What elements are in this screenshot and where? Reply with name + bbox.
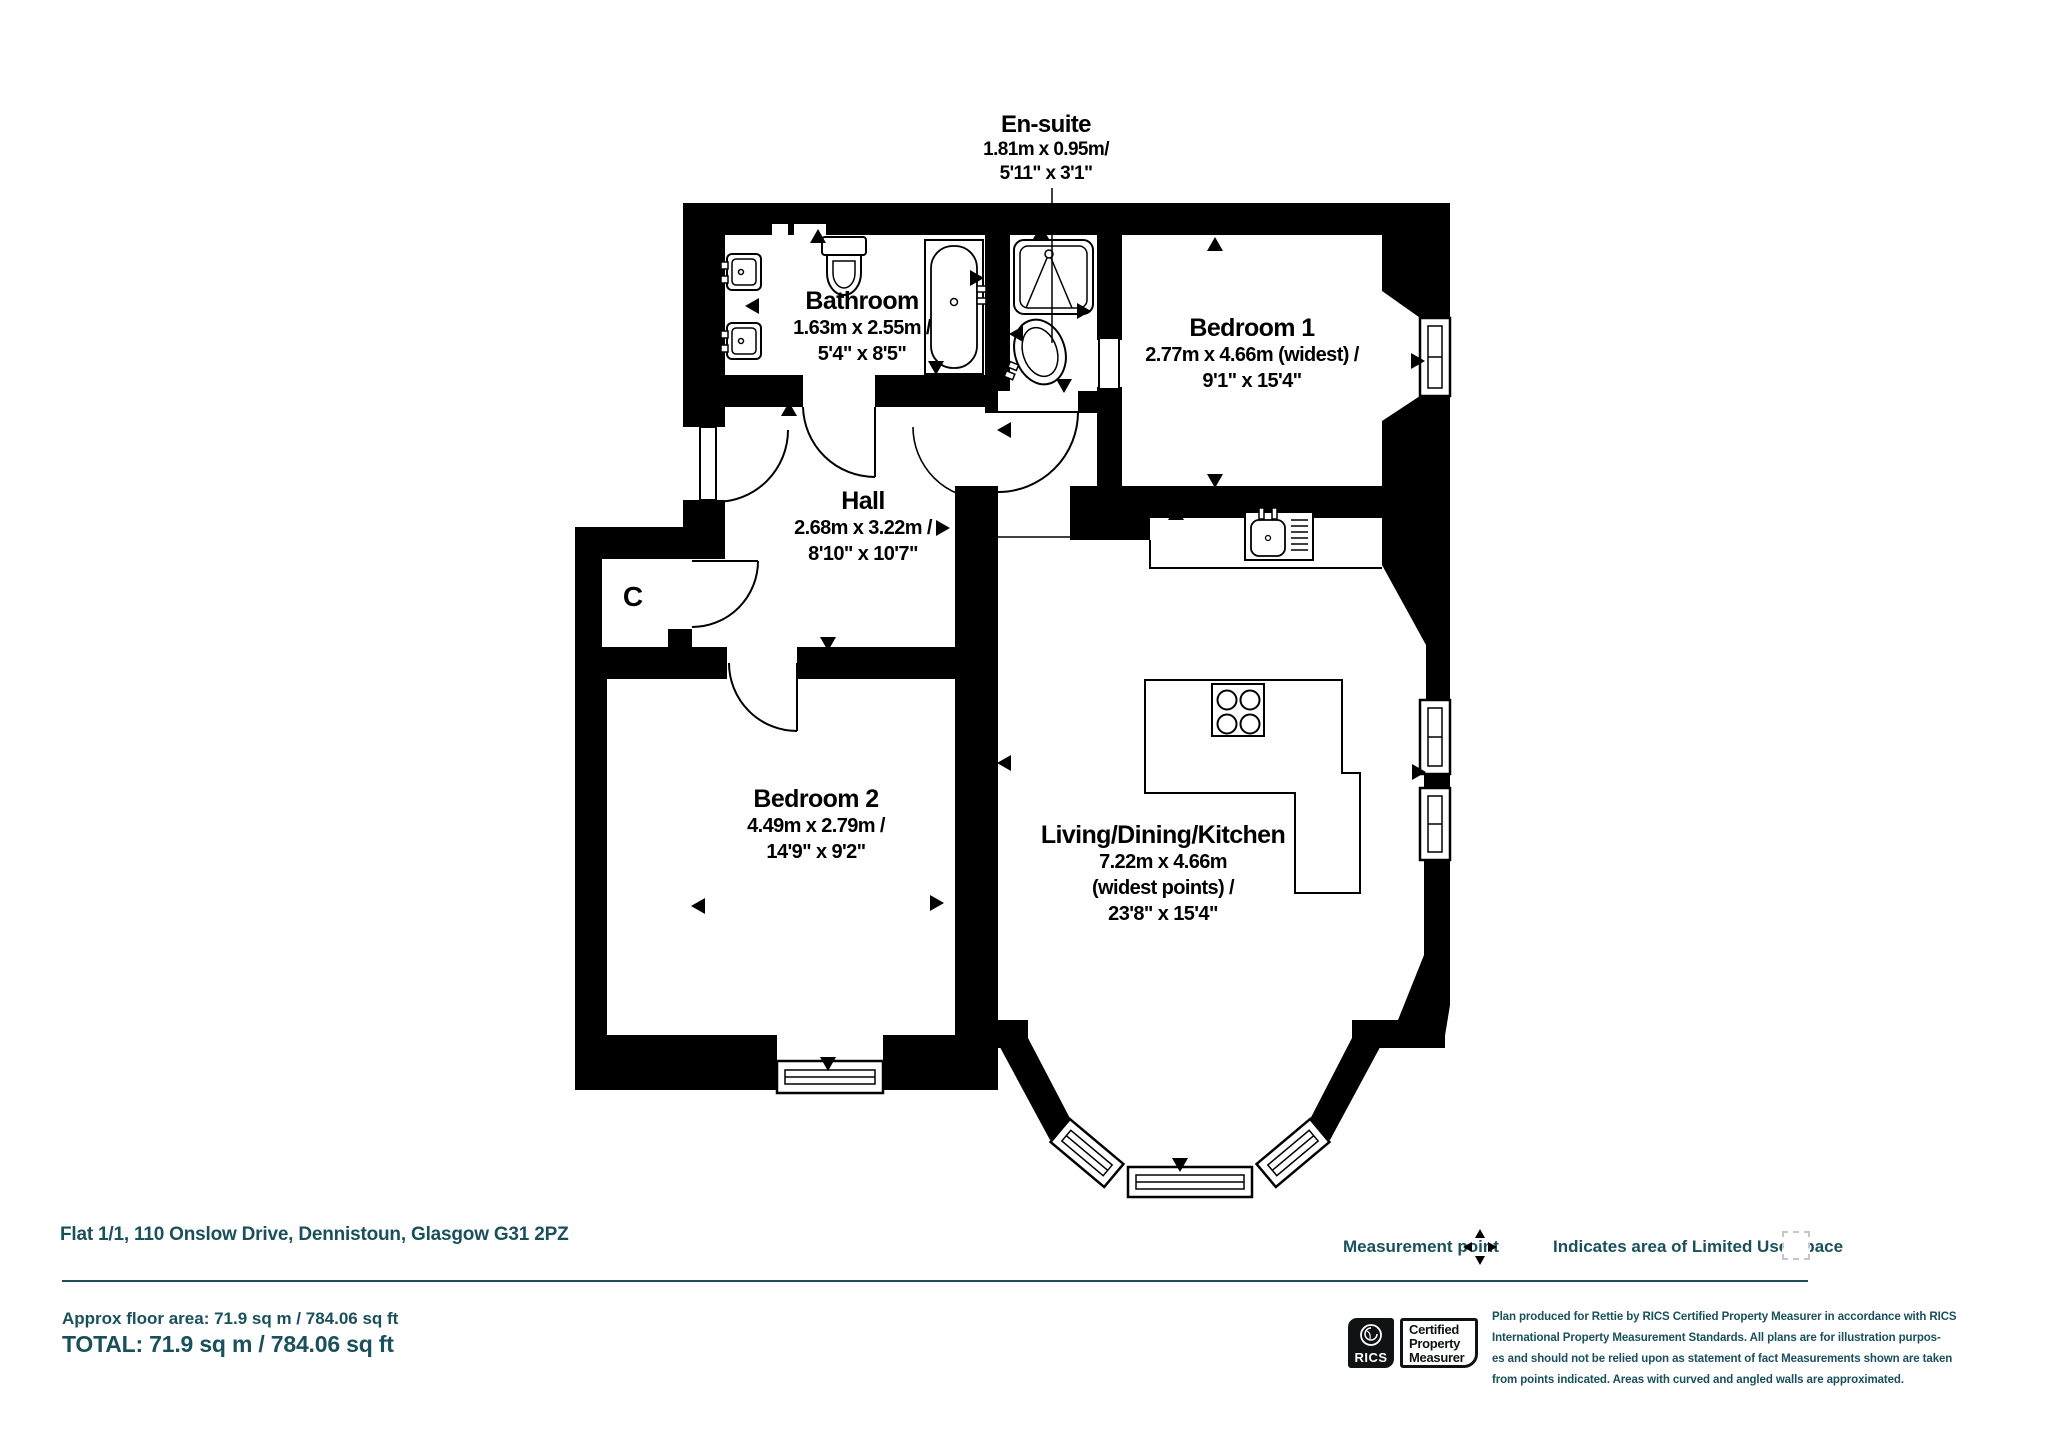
room-dims: 2.77m x 4.66m (widest) / bbox=[1145, 342, 1358, 368]
window-bay-right bbox=[1257, 1119, 1330, 1187]
room-title: Hall bbox=[794, 487, 932, 515]
room-dims: 4.49m x 2.79m / bbox=[747, 813, 885, 839]
window-bedroom1 bbox=[1420, 318, 1450, 396]
room-dims: 5'11" x 3'1" bbox=[983, 162, 1109, 186]
closet-door bbox=[692, 561, 758, 627]
footer-divider bbox=[62, 1280, 1808, 1282]
window-bay-center bbox=[1128, 1167, 1252, 1197]
window-living-right-1 bbox=[1420, 700, 1450, 774]
room-title: Bathroom bbox=[793, 287, 931, 315]
certified-property-measurer-badge: Certified Property Measurer bbox=[1400, 1318, 1478, 1368]
approx-floor-area: Approx floor area: 71.9 sq m / 784.06 sq… bbox=[62, 1309, 398, 1329]
room-title: Bedroom 2 bbox=[747, 785, 885, 813]
bedroom2-door bbox=[729, 663, 797, 731]
limited-use-space-swatch bbox=[1782, 1231, 1810, 1260]
disclaimer-line: International Property Measurement Stand… bbox=[1492, 1328, 2002, 1349]
room-dims: 7.22m x 4.66m bbox=[1041, 849, 1285, 875]
property-address: Flat 1/1, 110 Onslow Drive, Dennistoun, … bbox=[60, 1224, 569, 1246]
room-label-ensuite: En-suite 1.81m x 0.95m/ 5'11" x 3'1" bbox=[983, 112, 1109, 186]
ensuite-door-leaf bbox=[1099, 338, 1119, 389]
measurement-arrow bbox=[936, 520, 950, 536]
rics-wordmark: RICS bbox=[1348, 1350, 1394, 1365]
measurement-arrow bbox=[997, 422, 1011, 438]
room-dims: 14'9" x 9'2" bbox=[747, 839, 885, 865]
basin-icon bbox=[721, 323, 761, 359]
measurement-arrow bbox=[1207, 237, 1223, 251]
measurement-arrow bbox=[997, 755, 1011, 771]
shower-icon bbox=[1014, 240, 1093, 314]
room-label-bedroom2: Bedroom 2 4.49m x 2.79m / 14'9" x 9'2" bbox=[747, 785, 885, 865]
cert-line: Certified bbox=[1409, 1323, 1475, 1337]
room-title: En-suite bbox=[983, 112, 1109, 138]
basin-icon bbox=[721, 254, 761, 290]
room-title: Bedroom 1 bbox=[1145, 314, 1358, 342]
entrance-door bbox=[716, 430, 788, 502]
disclaimer-line: from points indicated. Areas with curved… bbox=[1492, 1370, 2002, 1391]
room-label-living: Living/Dining/Kitchen 7.22m x 4.66m (wid… bbox=[1041, 821, 1285, 927]
cert-line: Property bbox=[1409, 1337, 1475, 1351]
measurement-arrow bbox=[745, 298, 759, 314]
total-floor-area: TOTAL: 71.9 sq m / 784.06 sq ft bbox=[62, 1331, 394, 1358]
bathroom-door bbox=[803, 407, 875, 477]
room-label-bathroom: Bathroom 1.63m x 2.55m / 5'4" x 8'5" bbox=[793, 287, 931, 367]
measurement-arrow bbox=[1207, 474, 1223, 488]
room-dims: 2.68m x 3.22m / bbox=[794, 515, 932, 541]
room-dims: (widest points) / bbox=[1041, 875, 1285, 901]
room-label-hall: Hall 2.68m x 3.22m / 8'10" x 10'7" bbox=[794, 487, 932, 567]
disclaimer: Plan produced for Rettie by RICS Certifi… bbox=[1492, 1307, 2002, 1391]
room-dims: 5'4" x 8'5" bbox=[793, 341, 931, 367]
measurement-arrow bbox=[930, 895, 944, 911]
cert-line: Measurer bbox=[1409, 1351, 1475, 1365]
room-label-closet: C bbox=[623, 581, 643, 613]
window-bay-left bbox=[1051, 1119, 1124, 1187]
room-dims: 23'8" x 15'4" bbox=[1041, 901, 1285, 927]
entrance-door-leaf bbox=[700, 427, 716, 500]
disclaimer-line: es and should not be relied upon as stat… bbox=[1492, 1349, 2002, 1370]
window-living-right-2 bbox=[1420, 788, 1450, 860]
doors bbox=[692, 407, 1078, 731]
rics-logo: RICS bbox=[1348, 1318, 1394, 1368]
bathtub-icon bbox=[925, 240, 986, 374]
disclaimer-line: Plan produced for Rettie by RICS Certifi… bbox=[1492, 1307, 2002, 1328]
windows bbox=[700, 318, 1450, 1197]
room-dims: 1.81m x 0.95m/ bbox=[983, 138, 1109, 162]
room-dims: 1.63m x 2.55m / bbox=[793, 315, 931, 341]
measurement-point-icon bbox=[1463, 1229, 1497, 1265]
room-label-bedroom1: Bedroom 1 2.77m x 4.66m (widest) / 9'1" … bbox=[1145, 314, 1358, 394]
hob-icon bbox=[1212, 684, 1264, 736]
room-dims: 8'10" x 10'7" bbox=[794, 541, 932, 567]
kitchen-sink-icon bbox=[1245, 508, 1313, 560]
room-dims: 9'1" x 15'4" bbox=[1145, 368, 1358, 394]
hall-inner-door bbox=[913, 412, 1078, 499]
floorplan-page: En-suite 1.81m x 0.95m/ 5'11" x 3'1" Bat… bbox=[0, 0, 2048, 1448]
rics-lion-icon bbox=[1348, 1318, 1394, 1350]
measurement-arrow bbox=[691, 898, 705, 914]
room-title: Living/Dining/Kitchen bbox=[1041, 821, 1285, 849]
measurement-arrow bbox=[1056, 379, 1072, 393]
